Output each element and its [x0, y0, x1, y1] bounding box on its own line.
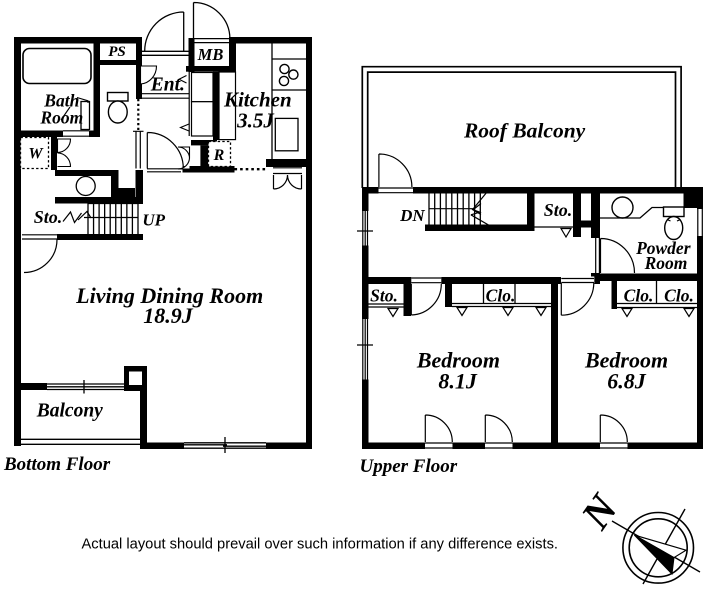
svg-text:8.1J: 8.1J: [438, 369, 478, 394]
svg-text:Room: Room: [39, 108, 83, 128]
svg-text:Balcony: Balcony: [36, 401, 103, 422]
svg-text:Clo.: Clo.: [624, 285, 654, 305]
svg-text:UP: UP: [142, 211, 165, 230]
svg-text:Clo.: Clo.: [664, 285, 694, 305]
svg-text:Sto.: Sto.: [34, 207, 63, 227]
svg-text:Bottom Floor: Bottom Floor: [3, 454, 111, 475]
svg-text:R: R: [213, 147, 225, 164]
svg-text:Actual layout should prevail o: Actual layout should prevail over such i…: [82, 536, 559, 552]
svg-text:Roof Balcony: Roof Balcony: [463, 119, 586, 143]
svg-text:Room: Room: [644, 253, 688, 273]
svg-text:PS: PS: [108, 44, 126, 60]
svg-text:Sto.: Sto.: [544, 200, 573, 220]
svg-text:Upper Floor: Upper Floor: [360, 456, 458, 477]
svg-text:DN: DN: [399, 206, 425, 225]
svg-text:Sto.: Sto.: [370, 286, 398, 306]
svg-text:W: W: [28, 146, 44, 163]
svg-text:MB: MB: [197, 45, 224, 64]
svg-text:Ent.: Ent.: [150, 74, 185, 95]
svg-text:18.9J: 18.9J: [143, 303, 194, 328]
svg-text:6.8J: 6.8J: [607, 369, 647, 394]
svg-text:Clo.: Clo.: [486, 286, 516, 306]
svg-text:3.5J: 3.5J: [236, 109, 275, 133]
